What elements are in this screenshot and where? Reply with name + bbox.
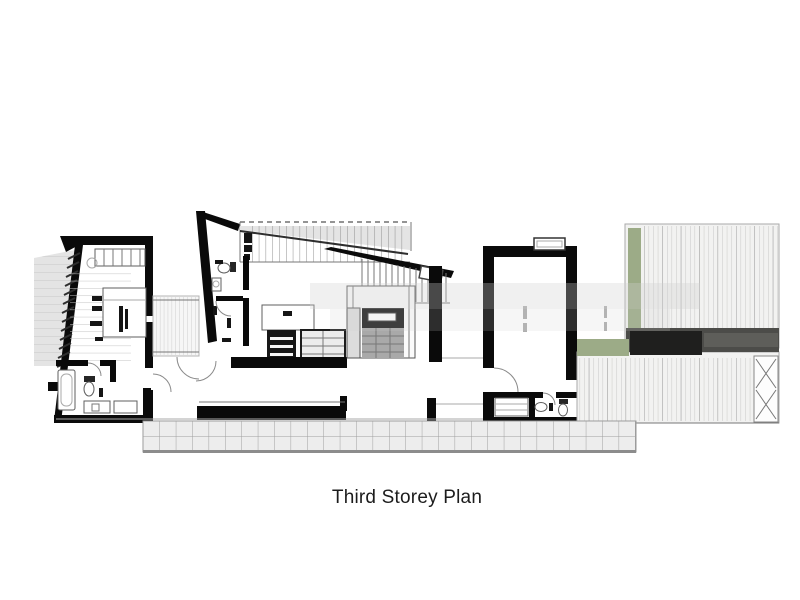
label-smudge: [244, 233, 252, 243]
wall-segment: [143, 388, 151, 421]
wall-segment: [110, 366, 116, 382]
stair-lower-flight: [362, 328, 404, 358]
lower-deck-slats-accent: [579, 358, 753, 421]
wall-segment: [556, 392, 577, 398]
bridge-slats: [154, 297, 198, 355]
sink-symbol: [535, 403, 547, 412]
floor-plan-page: Third Storey Plan: [0, 0, 800, 600]
cabinet-slot: [270, 345, 293, 348]
label-smudge: [215, 260, 223, 264]
door-arc: [216, 301, 231, 316]
label-smudge: [549, 403, 553, 411]
pergola-shadow-dark: [630, 331, 702, 355]
wall-segment: [56, 360, 88, 366]
wall-segment: [100, 360, 116, 366]
wall-segment: [231, 357, 347, 368]
wardrobe-symbol: [95, 249, 145, 266]
toilet-cistern: [559, 399, 568, 404]
watermark: [310, 283, 700, 331]
label-smudge: [90, 321, 102, 326]
desk-symbol: [262, 305, 314, 330]
wardrobe-symbol: [495, 398, 528, 416]
label-smudge: [244, 245, 252, 252]
label-smudge: [227, 318, 231, 328]
cross-brace-panel: [754, 356, 778, 422]
door-arc: [494, 368, 518, 392]
toilet-symbol: [218, 263, 230, 273]
label-smudge: [92, 306, 102, 311]
bench-symbol: [114, 401, 137, 413]
bed-symbol: [103, 288, 146, 337]
tiled-canopy: [143, 421, 636, 453]
cabinet-slot: [270, 337, 293, 340]
canopy-grid-lines: [143, 421, 636, 452]
toilet-cistern: [230, 262, 236, 272]
wall-segment: [216, 296, 243, 301]
wall-segment: [243, 298, 249, 346]
wall-segment: [197, 406, 346, 420]
toilet-symbol: [559, 404, 568, 416]
pergola-shadow-soft: [704, 333, 778, 347]
label-smudge: [99, 388, 103, 397]
wall-segment: [494, 392, 543, 398]
door-arc: [196, 361, 216, 381]
label-smudge: [213, 306, 217, 315]
wall-segment: [243, 256, 249, 290]
window-bay: [534, 238, 565, 250]
watermark-band: [310, 283, 700, 309]
door-arc: [88, 363, 101, 376]
canopy-edge: [143, 450, 636, 453]
walkway-lines: [436, 358, 483, 404]
toilet-cistern: [84, 376, 95, 382]
cabinet-slot: [270, 353, 293, 356]
toilet-symbol: [84, 382, 94, 396]
label-smudge: [119, 306, 123, 332]
label-smudge: [125, 309, 128, 329]
door-arc: [153, 374, 171, 392]
watermark-band: [330, 309, 670, 331]
label-smudge: [222, 338, 231, 342]
floor-plan-drawing: [0, 0, 800, 600]
planter-strip-horizontal: [577, 339, 629, 356]
plan-title: Third Storey Plan: [0, 487, 800, 509]
label-smudge: [92, 296, 102, 301]
door-arc: [177, 357, 199, 379]
right-wing: [483, 238, 577, 426]
label-smudge: [283, 311, 292, 316]
label-smudge: [95, 337, 103, 341]
wall-segment: [427, 398, 436, 422]
